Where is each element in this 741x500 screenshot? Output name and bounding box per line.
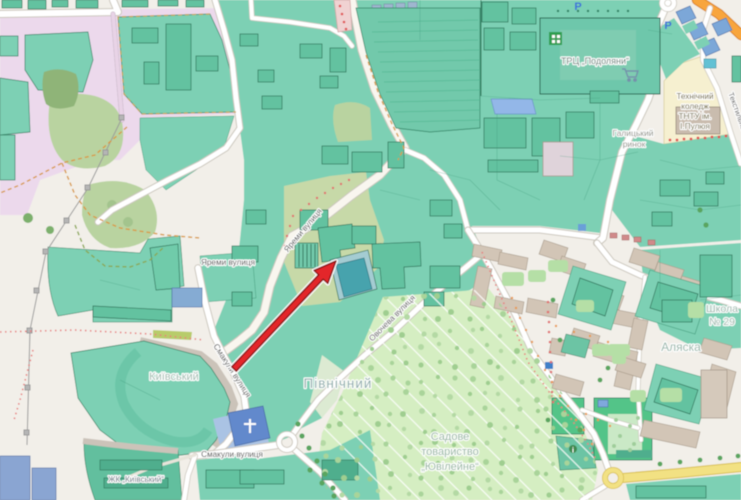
svg-text:i: i [572, 448, 574, 455]
svg-text:Смакули вулиця: Смакули вулиця [201, 450, 263, 459]
svg-text:коледж: коледж [681, 102, 709, 111]
svg-text:Р: Р [664, 20, 671, 32]
svg-text:Школа: Школа [706, 303, 738, 315]
svg-text:Садове: Садове [431, 431, 470, 443]
svg-text:Північний: Північний [304, 376, 373, 391]
svg-text:Київський: Київський [149, 371, 199, 383]
svg-text:Галицький: Галицький [612, 128, 653, 138]
svg-text:„Ювілейне“: „Ювілейне“ [421, 461, 479, 473]
svg-text:Р: Р [574, 1, 581, 13]
svg-text:ЖК „Київський“: ЖК „Київський“ [108, 475, 164, 484]
svg-text:І.Пулюя: І.Пулюя [680, 122, 710, 131]
svg-text:ТРЦ „Подоляни“: ТРЦ „Подоляни“ [561, 56, 629, 66]
svg-text:ТНТУ ім.: ТНТУ ім. [678, 112, 711, 121]
svg-text:Аляска: Аляска [661, 340, 701, 354]
svg-text:Технічний: Технічний [676, 92, 713, 101]
svg-text:ринок: ринок [623, 139, 646, 149]
svg-text:№ 29: № 29 [709, 316, 735, 328]
svg-text:товариство: товариство [421, 446, 479, 458]
svg-text:Яреми вулиця: Яреми вулиця [201, 258, 255, 267]
